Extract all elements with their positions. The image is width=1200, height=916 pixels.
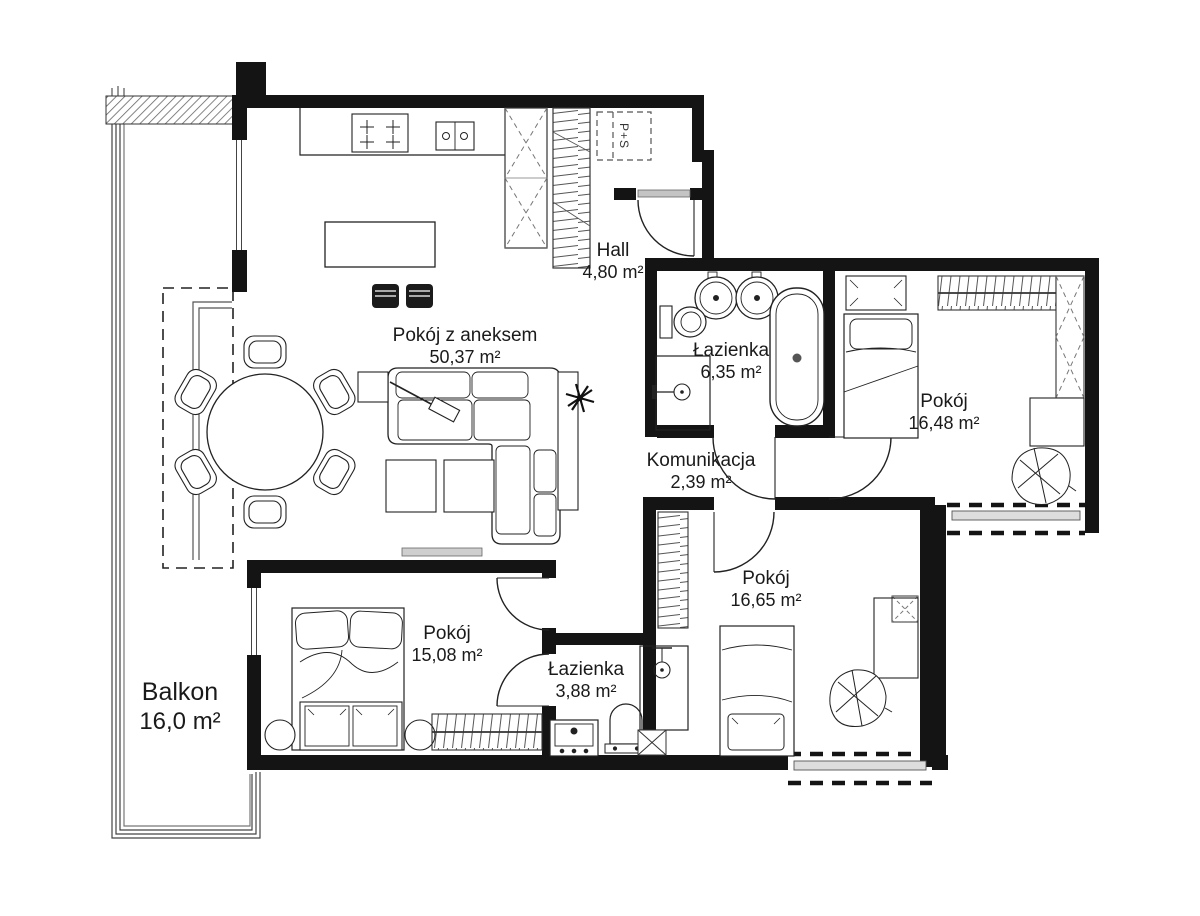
door-bathroom2 <box>497 654 549 706</box>
radiator <box>402 548 482 556</box>
bedroom3-bed-icon <box>292 608 404 750</box>
room-label-komunikacja: Komunikacja 2,39 m² <box>647 450 756 494</box>
room-label-bathroom2: Łazienka 3,88 m² <box>548 659 624 703</box>
bedroom2-wardrobe-icon <box>658 512 688 628</box>
room-name: Komunikacja <box>647 450 756 472</box>
room-area: 2,39 m² <box>647 473 756 494</box>
side-table <box>358 372 388 402</box>
bedroom3-clothes-rail <box>432 714 542 750</box>
tv-shelf <box>558 372 578 510</box>
stove-icon <box>352 114 408 152</box>
room-area: 50,37 m² <box>393 348 538 369</box>
washer-dryer-label: P+S <box>617 123 631 149</box>
kitchen-sink-icon <box>436 122 474 150</box>
door-bedroom3 <box>497 578 549 630</box>
room-name: Balkon <box>139 678 220 708</box>
room-name: Pokój <box>411 623 482 645</box>
floor-plan-drawing <box>0 0 1200 916</box>
bedroom1-desk <box>1030 398 1084 446</box>
kitchen-island <box>325 222 435 267</box>
duct-shaft-icon <box>638 730 666 755</box>
room-label-hall: Hall 4,80 m² <box>582 240 643 284</box>
room-area: 16,0 m² <box>139 708 220 736</box>
bedroom1-armchair-icon <box>1012 448 1076 505</box>
room-area: 15,08 m² <box>411 646 482 667</box>
bar-stools <box>372 284 433 308</box>
bedroom3-nightstand-left <box>265 720 295 750</box>
room-label-bedroom1: Pokój 16,48 m² <box>908 391 979 435</box>
bedroom1-nightstand <box>846 276 906 310</box>
bedroom2-shelf-icon <box>892 596 918 622</box>
door-bedroom2 <box>714 512 774 572</box>
room-label-bedroom3: Pokój 15,08 m² <box>411 623 482 667</box>
bedroom1-bed-icon <box>844 314 918 438</box>
bedroom2-bed-icon <box>720 626 794 756</box>
room-label-bedroom2: Pokój 16,65 m² <box>730 568 801 612</box>
bedroom3-nightstand-right <box>405 720 435 750</box>
bathtub-icon <box>770 288 824 426</box>
room-area: 16,48 m² <box>908 414 979 435</box>
room-area: 4,80 m² <box>582 263 643 284</box>
room-name: Łazienka <box>693 340 769 362</box>
tall-cabinet-icon <box>505 108 547 248</box>
poufs <box>386 460 494 512</box>
door-entrance <box>638 200 694 256</box>
bedroom1-clothes-rail <box>938 276 1056 310</box>
entrance-threshold <box>638 190 690 197</box>
room-label-living: Pokój z aneksem 50,37 m² <box>393 325 538 369</box>
balcony-divider-hatch <box>106 86 234 124</box>
room-name: Pokój <box>730 568 801 590</box>
room-area: 16,65 m² <box>730 591 801 612</box>
bathroom2-vanity-icon <box>550 720 598 756</box>
window-bay-bedroom1 <box>947 505 1085 533</box>
room-name: Łazienka <box>548 659 624 681</box>
room-name: Pokój z aneksem <box>393 325 538 347</box>
toilet1-icon <box>660 306 706 338</box>
dining-table <box>207 374 323 490</box>
window-left-lower <box>252 588 257 655</box>
room-label-bathroom1: Łazienka 6,35 m² <box>693 340 769 384</box>
bedroom1-wardrobe-icon <box>1056 276 1084 398</box>
room-name: Hall <box>582 240 643 262</box>
room-name: Pokój <box>908 391 979 413</box>
bathroom1-sinks-icon <box>695 272 778 319</box>
room-area: 3,88 m² <box>548 682 624 703</box>
door-bedroom1 <box>829 437 891 499</box>
room-area: 6,35 m² <box>693 363 769 384</box>
window-bay-bedroom2 <box>788 754 932 783</box>
floor-plan: Pokój z aneksem 50,37 m² Hall 4,80 m² Ła… <box>0 0 1200 916</box>
window-left-upper <box>237 140 242 250</box>
room-label-balkon: Balkon 16,0 m² <box>139 678 220 736</box>
